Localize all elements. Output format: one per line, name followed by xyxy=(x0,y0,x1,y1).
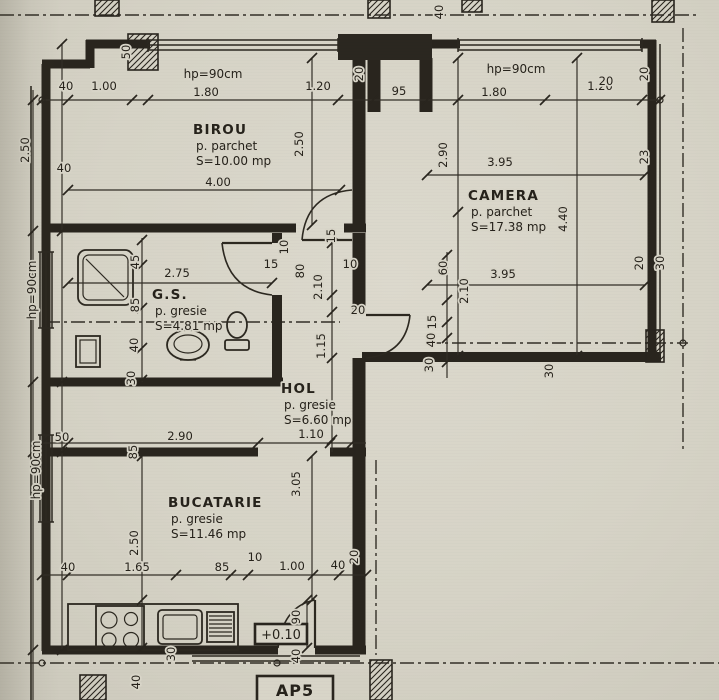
dim-label: 4.40 xyxy=(556,206,570,232)
dim-label: 20 xyxy=(632,256,646,271)
room-area-camera: S=17.38 mp xyxy=(471,220,546,234)
dim-label: 1.00 xyxy=(279,559,305,573)
dim-label: 2.50 xyxy=(127,530,141,556)
column-hatch xyxy=(646,330,664,362)
room-finish-hol: p. gresie xyxy=(284,398,336,412)
room-label-camera: CAMERA xyxy=(468,188,539,204)
dim-label: 10 xyxy=(277,240,291,255)
dim-label: 15 xyxy=(324,229,338,244)
dim-label: 2.10 xyxy=(311,274,325,300)
dim-label: 2.10 xyxy=(457,278,471,304)
window-camera xyxy=(458,38,642,52)
dim-label: 30 xyxy=(542,364,556,379)
dim-label: 15 xyxy=(264,257,279,271)
dim-label: 85 xyxy=(215,560,230,574)
dim-label: 1.00 xyxy=(91,79,117,93)
column-hatch xyxy=(462,0,482,12)
room-label-bucatarie: BUCATARIE xyxy=(168,495,263,511)
dim-label: 95 xyxy=(392,84,407,98)
room-finish-bucatarie: p. gresie xyxy=(171,512,223,526)
window-height-label: hp=90cm xyxy=(184,67,243,81)
room-finish-birou: p. parchet xyxy=(196,139,257,153)
room-label-hol: HOL xyxy=(281,381,316,397)
dim-label: 1.15 xyxy=(314,333,328,359)
dim-label: 15 xyxy=(425,315,439,330)
window-gs-left xyxy=(38,252,54,328)
kitchen-counter xyxy=(68,604,238,650)
dim-label: 50 xyxy=(55,430,70,444)
window-height-label: hp=90cm xyxy=(487,62,546,76)
room-area-birou: S=10.00 mp xyxy=(196,154,271,168)
dim-label: 10 xyxy=(248,550,263,564)
level-marker: +0.10 xyxy=(261,628,301,643)
dim-label: 40 xyxy=(424,333,438,348)
room-finish-gs: p. gresie xyxy=(155,304,207,318)
dim-label: 50 xyxy=(119,45,133,60)
dim-label: 85 xyxy=(128,298,142,313)
dim-label: 1.80 xyxy=(193,85,219,99)
sink-fixture xyxy=(167,330,209,360)
dim-label: 40 xyxy=(61,560,76,574)
drainer-fixture xyxy=(207,612,234,642)
window-height-label: hp=90cm xyxy=(29,441,43,500)
dim-label: 20 xyxy=(599,74,614,88)
scanned-floor-plan: +0.10 AP5 BIROUp. parchetS=10.00 mpCAMER… xyxy=(0,0,719,700)
dim-label: 80 xyxy=(293,264,307,279)
door-camera xyxy=(366,315,410,358)
dim-label: 85 xyxy=(126,445,140,460)
dim-label: 3.95 xyxy=(490,267,516,281)
dim-label: 30 xyxy=(653,256,667,271)
kitchen-sink-fixture xyxy=(158,610,202,644)
dim-label: 2.90 xyxy=(167,429,193,443)
plan-code: AP5 xyxy=(276,681,314,700)
dim-label: 40 xyxy=(432,5,446,20)
dim-label: 40 xyxy=(59,79,74,93)
dim-label: 2.75 xyxy=(164,266,190,280)
dim-label: 2.50 xyxy=(292,131,306,157)
column-hatch xyxy=(368,0,390,18)
window-birou xyxy=(148,38,338,52)
column-hatch xyxy=(652,0,674,22)
stove-fixture xyxy=(96,606,144,648)
dim-label: 2.90 xyxy=(436,142,450,168)
dim-label: 30 xyxy=(422,358,436,373)
dim-label: 1.80 xyxy=(481,85,507,99)
column-hatch xyxy=(95,0,119,16)
shower-fixture xyxy=(78,250,133,305)
dim-label: 3.05 xyxy=(289,471,303,497)
dim-label: 60 xyxy=(436,261,450,276)
dim-label: 40 xyxy=(57,161,72,175)
dim-label: 45 xyxy=(128,255,142,270)
dim-label: 1.10 xyxy=(298,427,324,441)
dim-label: 30 xyxy=(164,647,178,662)
dim-label: 1.65 xyxy=(124,560,150,574)
room-label-birou: BIROU xyxy=(193,122,247,138)
column-hatch xyxy=(370,660,392,700)
dim-label: 20 xyxy=(637,67,651,82)
dim-label: 20 xyxy=(351,303,366,317)
room-finish-camera: p. parchet xyxy=(471,205,532,219)
window-height-label: hp=90cm xyxy=(25,261,39,320)
dim-label: 40 xyxy=(331,558,346,572)
floor-plan-canvas: +0.10 AP5 BIROUp. parchetS=10.00 mpCAMER… xyxy=(0,0,719,700)
dim-label: 3.95 xyxy=(487,155,513,169)
dim-label: 40 xyxy=(129,675,143,690)
room-area-bucatarie: S=11.46 mp xyxy=(171,527,246,541)
dim-label: 20 xyxy=(352,67,366,82)
dim-label: 40 xyxy=(289,649,303,664)
room-area-gs: S=4.81 mp xyxy=(155,319,223,333)
dim-label: 10 xyxy=(343,257,358,271)
dim-label: 4.00 xyxy=(205,175,231,189)
wall-pier xyxy=(338,34,432,60)
dim-label: 40 xyxy=(127,338,141,353)
column-hatch xyxy=(80,675,106,700)
dim-label: 90 xyxy=(289,610,303,625)
dim-label: 20 xyxy=(347,550,361,565)
dim-label: 23 xyxy=(637,150,651,165)
dim-label: 1.20 xyxy=(305,79,331,93)
room-label-gs: G.S. xyxy=(152,287,188,303)
dim-label: 2.50 xyxy=(18,137,32,163)
labels: BIROUp. parchetS=10.00 mpCAMERAp. parche… xyxy=(18,5,667,690)
toilet-fixture xyxy=(225,312,249,350)
washer-fixture xyxy=(76,336,100,367)
dim-label: 30 xyxy=(124,371,138,386)
room-area-hol: S=6.60 mp xyxy=(284,413,352,427)
